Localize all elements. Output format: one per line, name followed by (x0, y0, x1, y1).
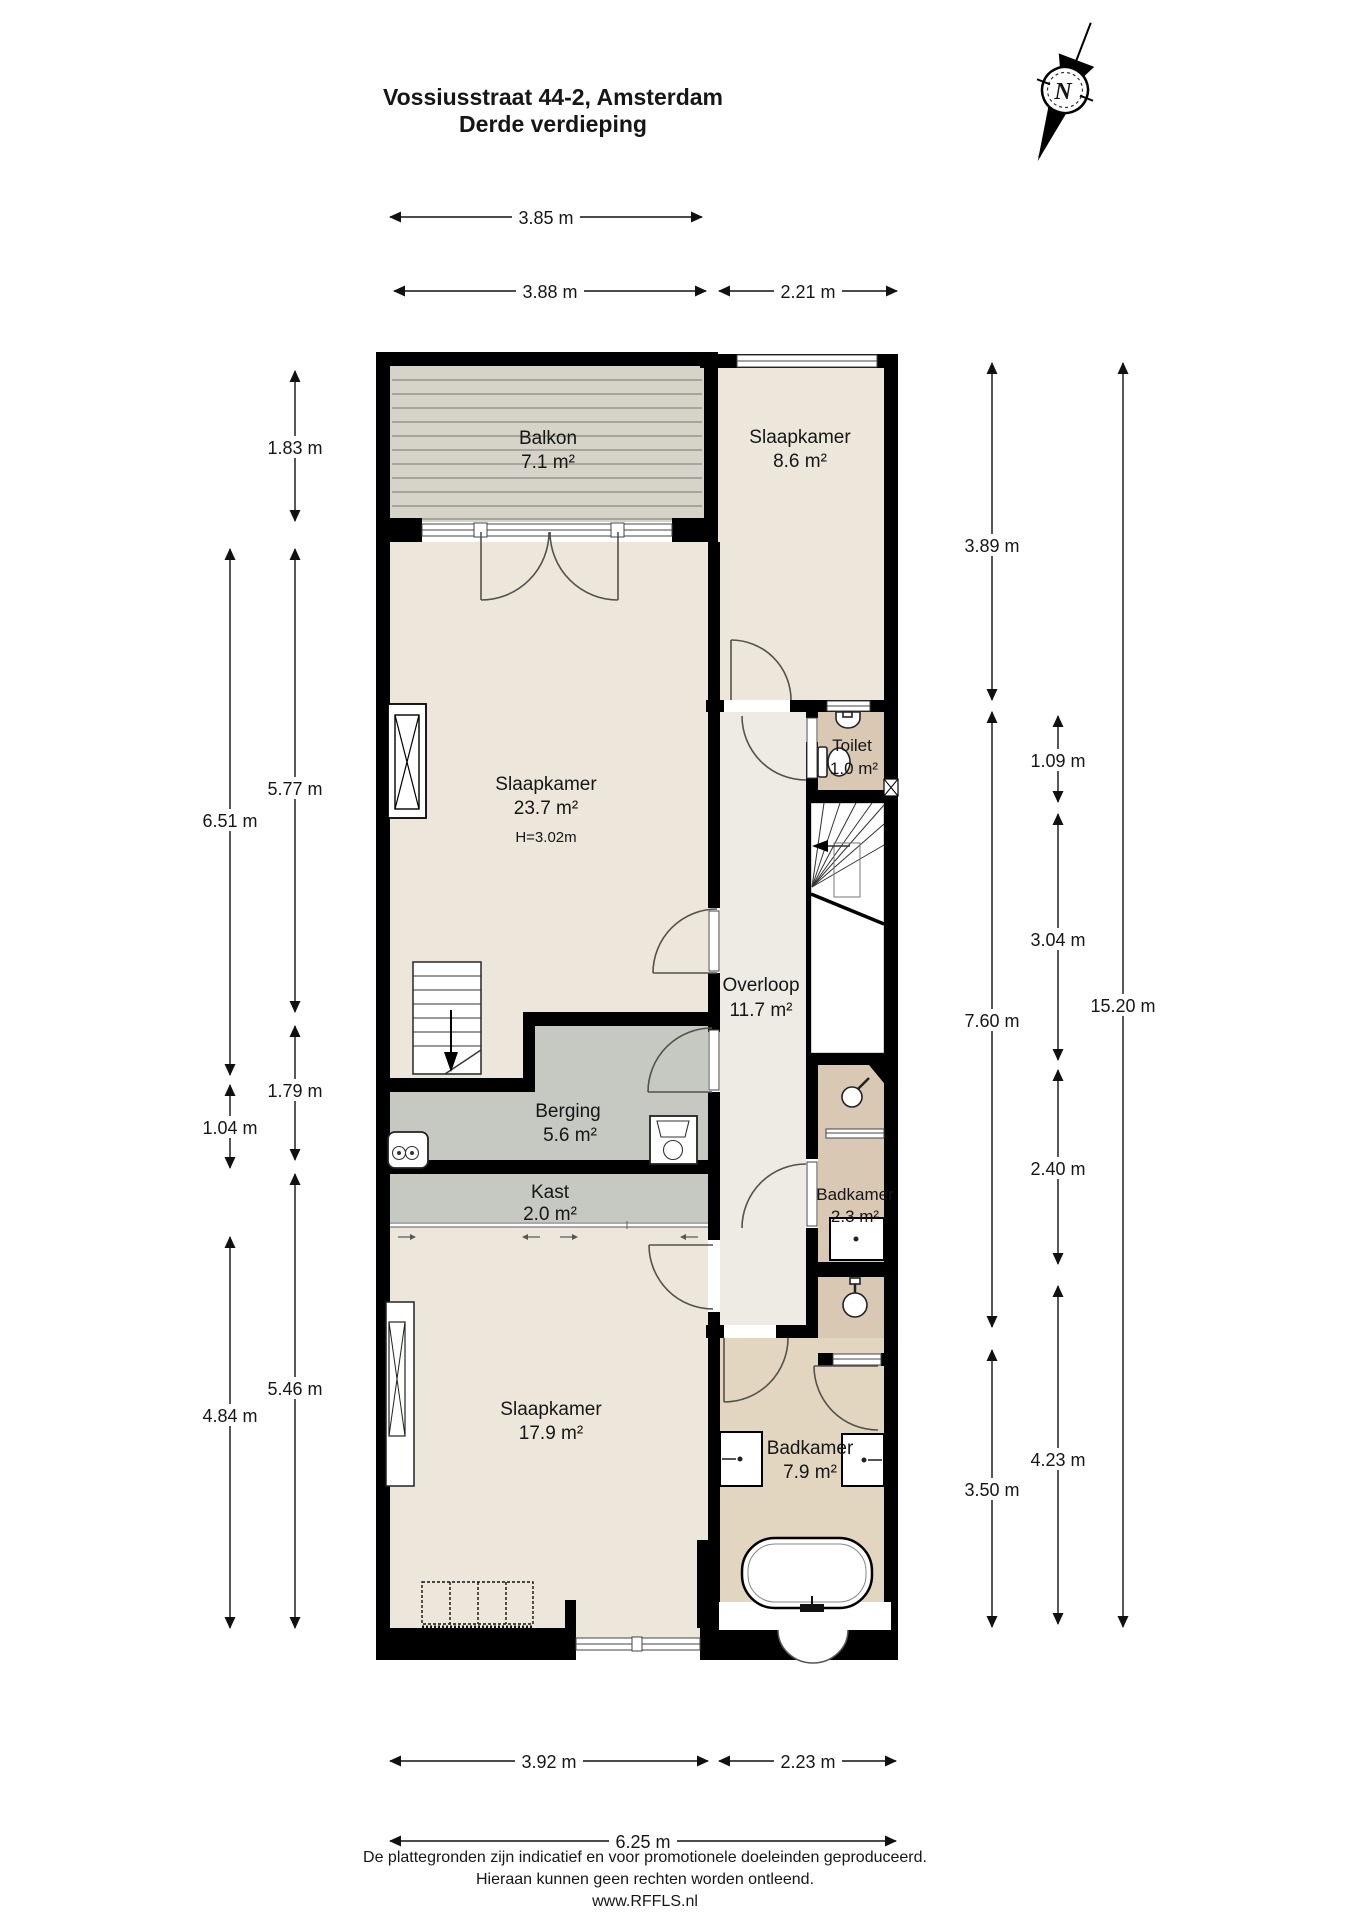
dim-right-240-label: 2.40 m (1030, 1159, 1085, 1179)
label-berging-area: 5.6 m² (543, 1125, 597, 1146)
dim-left-577-label: 5.77 m (267, 779, 322, 799)
label-slk-ro-area: 8.6 m² (773, 451, 827, 472)
label-kast-area: 2.0 m² (523, 1204, 577, 1225)
window-wastafelnis (833, 1354, 881, 1365)
label-toilet-name: Toilet (832, 736, 872, 755)
dim-left-179: 1.79 m (261, 1026, 329, 1160)
label-bdk-gr-area: 7.9 m² (783, 1462, 837, 1483)
dim-top-385-label: 3.85 m (518, 208, 573, 228)
dim-top-388-label: 3.88 m (522, 282, 577, 302)
footer-disclaimer: De plattegronden zijn indicatief en voor… (363, 1849, 927, 1910)
dim-right-109: 1.09 m (1024, 716, 1092, 802)
label-bdk-gr-name: Badkamer (767, 1438, 854, 1459)
compass-n-label: N (1053, 79, 1073, 105)
dim-right-423: 4.23 m (1024, 1286, 1092, 1624)
label-kast: Kast 2.0 m² (523, 1182, 577, 1225)
floor-trapgat (811, 803, 884, 1053)
dim-right-1520: 15.20 m (1085, 363, 1163, 1627)
chimney-shaft2-icon (386, 1302, 414, 1486)
title-line1: Vossiusstraat 44-2, Amsterdam (383, 84, 723, 110)
title-line2: Derde verdieping (459, 111, 647, 137)
dim-left-179-label: 1.79 m (267, 1081, 322, 1101)
footer-line1: De plattegronden zijn indicatief en voor… (363, 1849, 927, 1866)
window-slaapkamer-rechtsboven (737, 355, 877, 367)
floor-slaapkamer-rechtsboven (718, 366, 884, 700)
dim-left-183: 1.83 m (261, 371, 329, 521)
label-overloop-name: Overloop (722, 975, 799, 996)
label-slk-on-area: 17.9 m² (519, 1423, 583, 1444)
window-toilet (827, 701, 870, 711)
dim-right-423-label: 4.23 m (1030, 1450, 1085, 1470)
bathtub-icon (742, 1538, 872, 1612)
label-kast-name: Kast (531, 1182, 570, 1203)
dim-left-546-label: 5.46 m (267, 1379, 322, 1399)
dim-bottom-392: 3.92 m (390, 1750, 708, 1772)
dim-top-385: 3.85 m (390, 206, 702, 228)
dim-left-104-label: 1.04 m (202, 1118, 257, 1138)
dim-left-651-label: 6.51 m (202, 811, 257, 831)
dim-right-240: 2.40 m (1024, 1070, 1092, 1264)
label-balkon-area: 7.1 m² (521, 452, 575, 473)
compass-north-icon: N (1010, 12, 1119, 172)
dim-right-760: 7.60 m (958, 712, 1026, 1327)
dim-left-183-label: 1.83 m (267, 438, 322, 458)
window-balkon-pui (422, 523, 672, 537)
stairs-loft (413, 962, 481, 1074)
dim-left-546: 5.46 m (261, 1174, 329, 1628)
dim-top-221-label: 2.21 m (780, 282, 835, 302)
page-title: Vossiusstraat 44-2, Amsterdam Derde verd… (383, 84, 723, 137)
footer-line2: Hieraan kunnen geen rechten worden ontle… (476, 1871, 814, 1888)
floorplan-page: Vossiusstraat 44-2, Amsterdam Derde verd… (0, 0, 1358, 1920)
dim-right-304: 3.04 m (1024, 814, 1092, 1060)
shaft-x-icon (884, 779, 898, 796)
label-bdk-kl-name: Badkamer (816, 1185, 894, 1204)
dim-left-577: 5.77 m (261, 549, 329, 1012)
dim-bottom-223: 2.23 m (719, 1750, 896, 1772)
window-slaapkamer-onder (576, 1637, 700, 1651)
dim-right-350-label: 3.50 m (964, 1480, 1019, 1500)
dim-right-350: 3.50 m (958, 1350, 1026, 1627)
dim-right-1520-label: 15.20 m (1090, 996, 1155, 1016)
dim-bottom-223-label: 2.23 m (780, 1752, 835, 1772)
dim-bottom-392-label: 3.92 m (521, 1752, 576, 1772)
dim-left-651: 6.51 m (196, 549, 264, 1075)
label-overloop-area: 11.7 m² (729, 1000, 792, 1021)
floorplan-drawing: Vossiusstraat 44-2, Amsterdam Derde verd… (0, 0, 1358, 1920)
window-badkamer-klein-scheiding (826, 1129, 884, 1138)
boiler-icon (388, 1132, 428, 1168)
label-balkon-name: Balkon (519, 428, 577, 449)
dim-left-484: 4.84 m (196, 1237, 264, 1628)
dim-left-104: 1.04 m (196, 1085, 264, 1168)
washing-machine-icon (650, 1116, 697, 1164)
label-toilet-area: 1.0 m² (830, 759, 879, 778)
dim-top-388: 3.88 m (394, 280, 706, 302)
label-slk-on-name: Slaapkamer (500, 1399, 602, 1420)
label-slk-gr-area: 23.7 m² (514, 798, 578, 819)
vanity-left-icon (720, 1432, 762, 1486)
label-slk-gr-name: Slaapkamer (495, 774, 597, 795)
label-bdk-kl-area: 2.3 m² (831, 1207, 880, 1226)
dim-top-221: 2.21 m (719, 280, 897, 302)
label-berging-name: Berging (535, 1101, 601, 1122)
toilet-sink-icon (836, 712, 860, 728)
chimney-shaft-icon (388, 704, 426, 818)
label-slk-ro-name: Slaapkamer (749, 427, 851, 448)
dim-left-484-label: 4.84 m (202, 1406, 257, 1426)
dim-right-109-label: 1.09 m (1030, 751, 1085, 771)
footer-line3: www.RFFLS.nl (591, 1893, 698, 1910)
dim-right-760-label: 7.60 m (964, 1011, 1019, 1031)
dim-right-389: 3.89 m (958, 363, 1026, 700)
dim-right-389-label: 3.89 m (964, 536, 1019, 556)
label-slk-gr-hoogte: H=3.02m (515, 829, 576, 846)
dim-right-304-label: 3.04 m (1030, 930, 1085, 950)
